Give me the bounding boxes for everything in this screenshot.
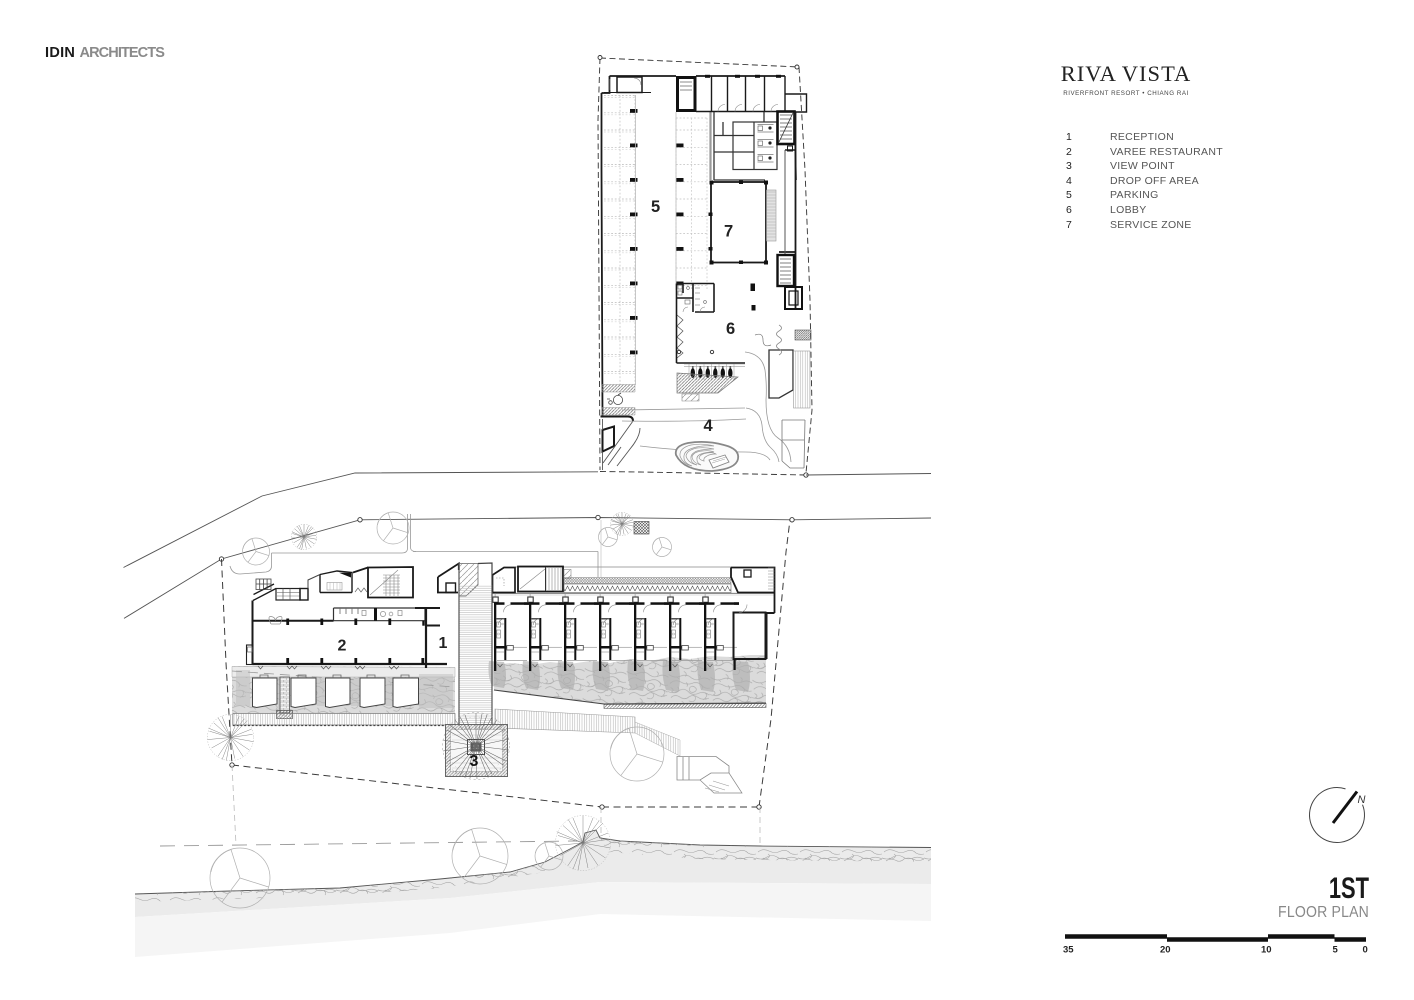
svg-text:3: 3	[470, 753, 479, 770]
svg-text:7: 7	[724, 223, 733, 241]
svg-text:20: 20	[1160, 945, 1171, 956]
svg-text:6: 6	[726, 320, 735, 338]
svg-text:1: 1	[439, 635, 448, 652]
svg-text:0: 0	[1363, 945, 1368, 956]
svg-text:2: 2	[338, 638, 347, 655]
svg-text:4: 4	[704, 417, 714, 435]
svg-text:5: 5	[1333, 945, 1339, 956]
svg-text:35: 35	[1063, 945, 1074, 956]
svg-text:N: N	[1358, 794, 1366, 806]
svg-text:10: 10	[1261, 945, 1272, 956]
svg-text:5: 5	[651, 198, 660, 216]
